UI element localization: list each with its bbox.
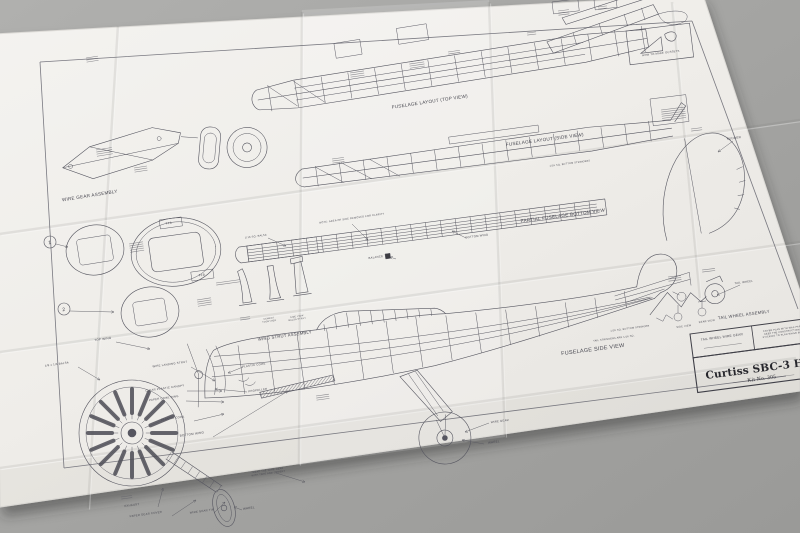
plan-drawing: FUSELAGE LAYOUT (TOP VIEW)FUSELAGE LAYOU… xyxy=(0,0,800,533)
photo-of-plan-sheet: FUSELAGE LAYOUT (TOP VIEW)FUSELAGE LAYOU… xyxy=(0,0,800,533)
